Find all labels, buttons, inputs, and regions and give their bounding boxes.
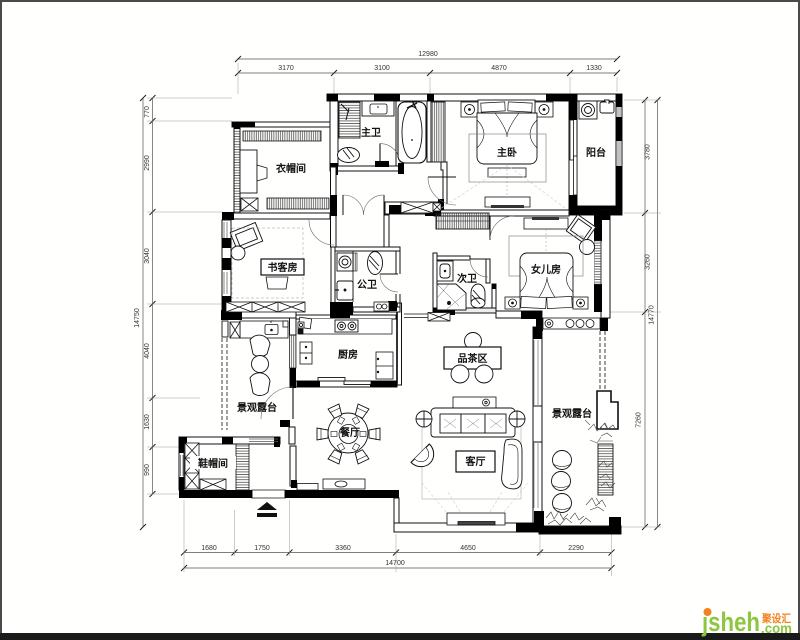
svg-text:4870: 4870: [491, 65, 507, 72]
svg-text:1680: 1680: [201, 545, 217, 552]
svg-text:1630: 1630: [144, 414, 151, 430]
svg-text:衣帽间: 衣帽间: [276, 162, 306, 175]
svg-text:12980: 12980: [418, 51, 438, 58]
svg-text:厨房: 厨房: [338, 348, 358, 361]
svg-text:景观露台: 景观露台: [237, 401, 277, 414]
svg-text:鞋帽间: 鞋帽间: [198, 457, 228, 470]
svg-text:770: 770: [144, 106, 151, 118]
svg-text:4650: 4650: [460, 545, 476, 552]
svg-text:990: 990: [144, 464, 151, 476]
svg-text:景观露台: 景观露台: [552, 407, 592, 420]
svg-text:公卫: 公卫: [357, 279, 377, 291]
svg-text:3170: 3170: [278, 65, 294, 72]
svg-text:14770: 14770: [649, 305, 656, 325]
svg-text:3260: 3260: [645, 254, 652, 270]
svg-text:3040: 3040: [144, 248, 151, 264]
svg-text:14750: 14750: [134, 308, 141, 328]
svg-text:次卫: 次卫: [457, 272, 477, 285]
svg-text:1330: 1330: [586, 65, 602, 72]
svg-text:2990: 2990: [144, 155, 151, 171]
svg-text:主卫: 主卫: [361, 126, 381, 139]
svg-text:主卧: 主卧: [497, 146, 517, 159]
svg-text:14700: 14700: [385, 560, 405, 567]
svg-text:品茶区: 品茶区: [458, 352, 488, 365]
svg-text:餐厅: 餐厅: [339, 426, 360, 439]
svg-text:7260: 7260: [636, 412, 643, 428]
svg-text:1750: 1750: [254, 545, 270, 552]
svg-text:2290: 2290: [568, 545, 584, 552]
svg-text:3100: 3100: [374, 65, 390, 72]
svg-text:3360: 3360: [335, 545, 351, 552]
svg-text:书客房: 书客房: [268, 261, 298, 274]
svg-text:客厅: 客厅: [465, 455, 486, 468]
svg-text:阳台: 阳台: [586, 146, 606, 159]
svg-text:4040: 4040: [144, 343, 151, 359]
svg-text:.com: .com: [761, 621, 792, 636]
svg-text:3780: 3780: [645, 144, 652, 160]
svg-text:女儿房: 女儿房: [531, 263, 561, 276]
